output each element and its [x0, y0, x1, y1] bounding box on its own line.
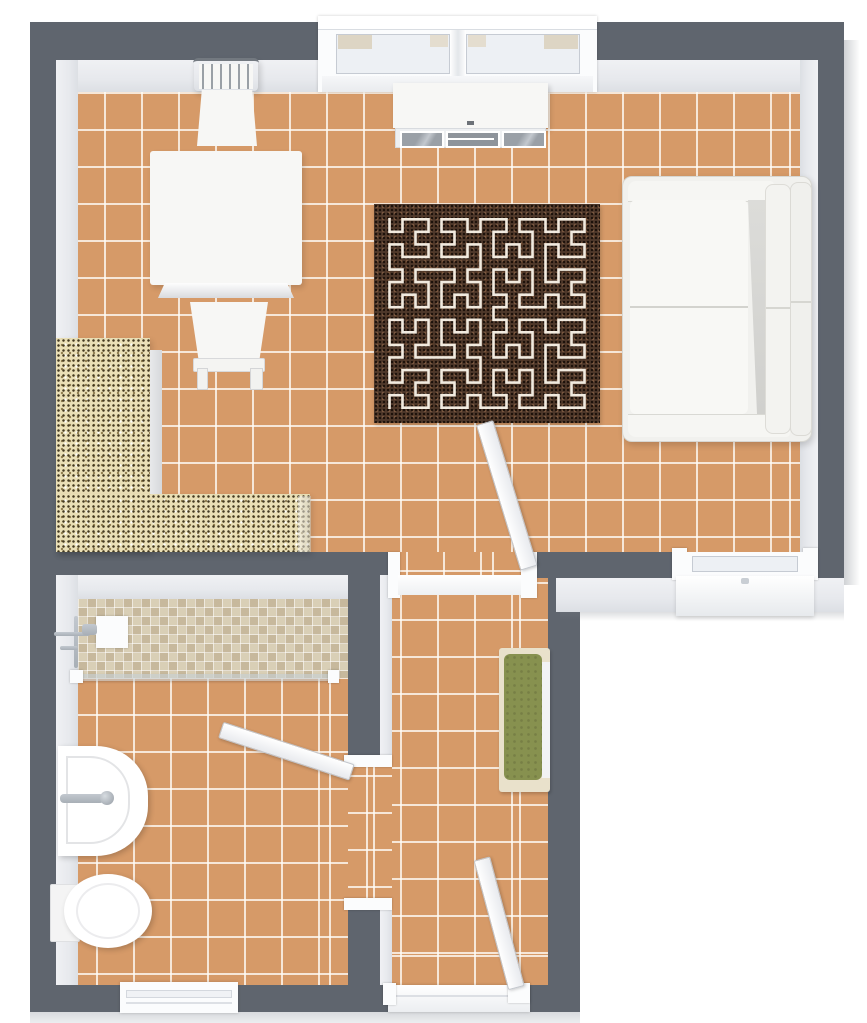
dining-chair-bottom-seat[interactable]: [190, 302, 268, 360]
sofa-backrest-inner-seam: [766, 307, 790, 309]
toilet-seat-line: [76, 883, 140, 939]
threshold-entry-line: [396, 995, 522, 997]
kitchen-counter-end-face: [298, 496, 311, 552]
bathroom-doorway-gap: [348, 767, 392, 898]
sofa[interactable]: [622, 176, 812, 442]
window-bathroom[interactable]: [120, 982, 238, 1013]
dining-chair-top-seat[interactable]: [197, 90, 257, 146]
window-top-curtain-right-inner: [468, 35, 486, 47]
rug-pattern: [383, 213, 591, 414]
wall-living-bathroom: [30, 552, 398, 575]
shower-glass-end-cap-left: [70, 670, 83, 683]
bench[interactable]: [499, 648, 550, 792]
window-bottom-right-pane: [692, 556, 798, 572]
sideboard-shelf-line: [448, 138, 494, 140]
window-bottom-right-handle: [741, 578, 749, 584]
window-top-outer-sill: [318, 16, 597, 30]
area-rug[interactable]: [374, 204, 600, 423]
toilet[interactable]: [50, 874, 152, 950]
sideboard[interactable]: [393, 83, 548, 148]
door-jamb-entry-left: [383, 983, 396, 1005]
window-top-curtain-left: [338, 35, 372, 49]
wall-left: [30, 22, 56, 1012]
window-bottom-right[interactable]: [672, 548, 818, 620]
window-top-curtain-right: [544, 35, 578, 49]
kitchen-counter-side-face: [150, 350, 162, 494]
dining-chair-bottom-leg-left: [197, 368, 208, 390]
bench-cushion: [504, 654, 542, 780]
sofa-armrest-top: [628, 181, 774, 202]
sideboard-compartment-left: [400, 131, 444, 148]
sideboard-base: [395, 128, 546, 148]
window-bathroom-pane: [126, 990, 232, 998]
right-outer-shadow: [844, 40, 860, 585]
dining-table[interactable]: [150, 151, 302, 285]
rug-pattern-line: [390, 219, 585, 407]
threshold-living-hallway: [398, 575, 521, 595]
window-top-curtain-left-inner: [430, 35, 448, 47]
sofa-backrest-outer: [790, 182, 812, 436]
sideboard-compartment-right: [502, 131, 546, 148]
washbasin-faucet-head: [100, 791, 114, 805]
wall-right: [818, 22, 844, 578]
sideboard-handle: [467, 121, 474, 125]
shower-riser-pipe[interactable]: [74, 616, 78, 668]
wall-hallway-right: [548, 552, 580, 1012]
bottom-outer-wall-face: [30, 1012, 580, 1023]
dining-table-front-edge: [158, 283, 294, 298]
kitchen-counter-horizontal[interactable]: [56, 494, 310, 552]
washbasin[interactable]: [58, 746, 148, 856]
bench-side-slat: [542, 662, 550, 778]
shower-wall-plate: [96, 616, 128, 648]
sofa-backrest-outer-seam: [791, 301, 811, 303]
dining-chair-bottom-leg-right: [250, 368, 263, 390]
sofa-seat-cushions: [630, 200, 748, 414]
door-jamb-bathroom-bottom: [344, 898, 392, 910]
washbasin-faucet: [60, 794, 104, 803]
window-bathroom-sill-line: [126, 1002, 232, 1004]
window-top-double[interactable]: [318, 16, 597, 92]
window-top-mullion: [450, 30, 466, 78]
shower-glass-end-cap-right: [328, 670, 339, 683]
bathroom-top-inner-face: [78, 575, 348, 599]
shower-head: [82, 624, 97, 635]
sofa-backrest-inner: [765, 184, 791, 434]
sofa-seat-seam: [630, 306, 748, 308]
floor-plan-canvas: [0, 0, 867, 1023]
dining-chair-top-back[interactable]: [193, 58, 259, 92]
shower-mixer-handle: [60, 646, 78, 650]
shower-glass-partition[interactable]: [78, 674, 336, 681]
sideboard-compartment-middle: [446, 131, 500, 148]
